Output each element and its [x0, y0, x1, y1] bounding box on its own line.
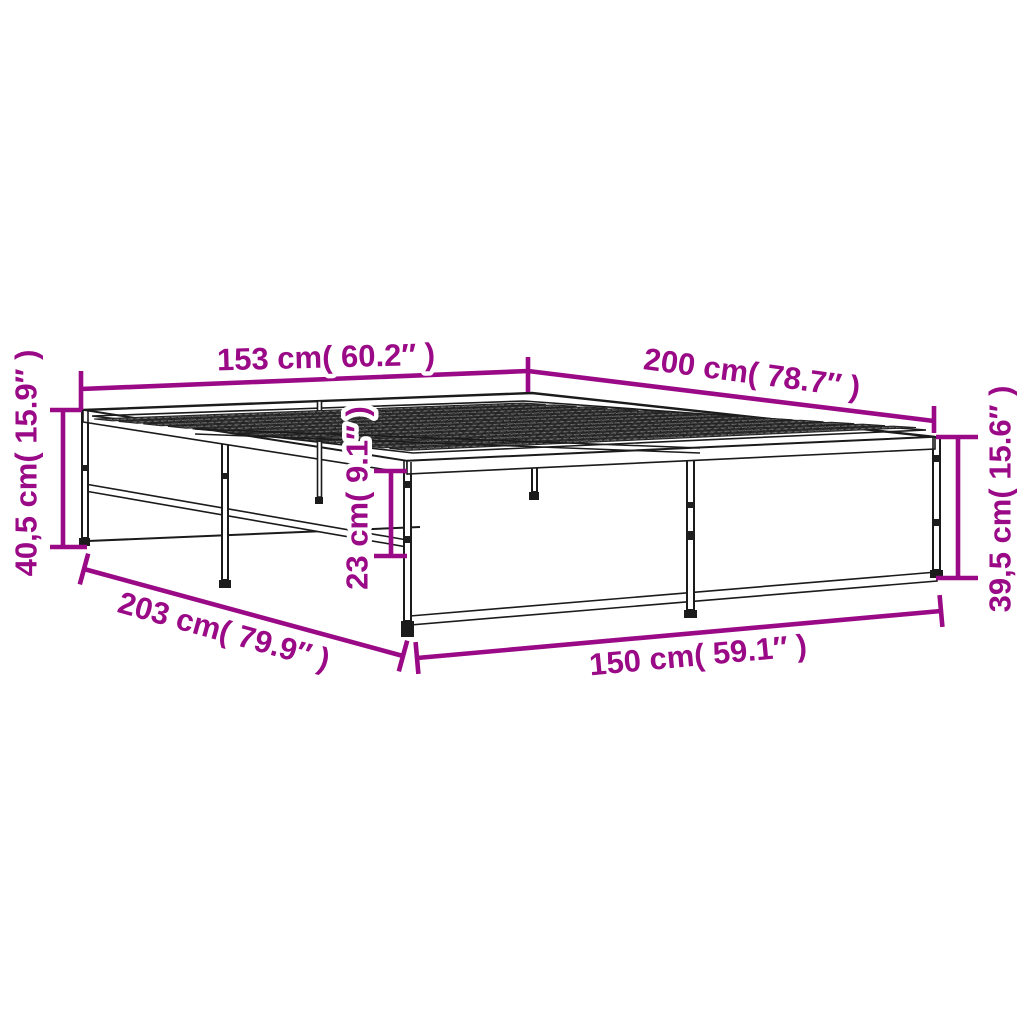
- dimension-left-height: 40,5 cm( 15.9″ ): [9, 350, 88, 577]
- dimension-label-inner-height: 23 cm( 9.1″ ): [340, 406, 375, 590]
- dimension-label-left-height: 40,5 cm( 15.9″ ): [9, 350, 44, 577]
- dimension-right-height: 39,5 cm( 15.6″ ): [936, 386, 1018, 613]
- left-corner-leg: [82, 410, 88, 538]
- front-middle-foot: [684, 610, 697, 618]
- head-middle-foot: [315, 497, 323, 504]
- near-corner-foot: [401, 621, 414, 637]
- left-middle-leg: [222, 441, 228, 580]
- dimension-label-top-width: 153 cm( 60.2″ ): [216, 337, 435, 378]
- diagram-canvas: 153 cm( 60.2″ ) 200 cm( 78.7″ ) 40,5 cm(…: [0, 0, 1024, 1024]
- dimension-annotations: 153 cm( 60.2″ ) 200 cm( 78.7″ ) 40,5 cm(…: [9, 337, 1018, 683]
- dimension-label-right-height: 39,5 cm( 15.6″ ): [983, 386, 1018, 613]
- dimension-label-top-length: 200 cm( 78.7″ ): [642, 341, 863, 405]
- far-corner-foot: [529, 492, 539, 500]
- dimension-label-bottom-width: 150 cm( 59.1″ ): [588, 628, 808, 683]
- bed-frame-dimension-diagram: 153 cm( 60.2″ ) 200 cm( 78.7″ ) 40,5 cm(…: [0, 0, 1024, 1024]
- dimension-label-bottom-length: 203 cm( 79.9″ ): [114, 585, 334, 677]
- slat-deck: [83, 393, 935, 504]
- bed-frame-drawing: [79, 393, 943, 637]
- left-middle-foot: [219, 580, 231, 588]
